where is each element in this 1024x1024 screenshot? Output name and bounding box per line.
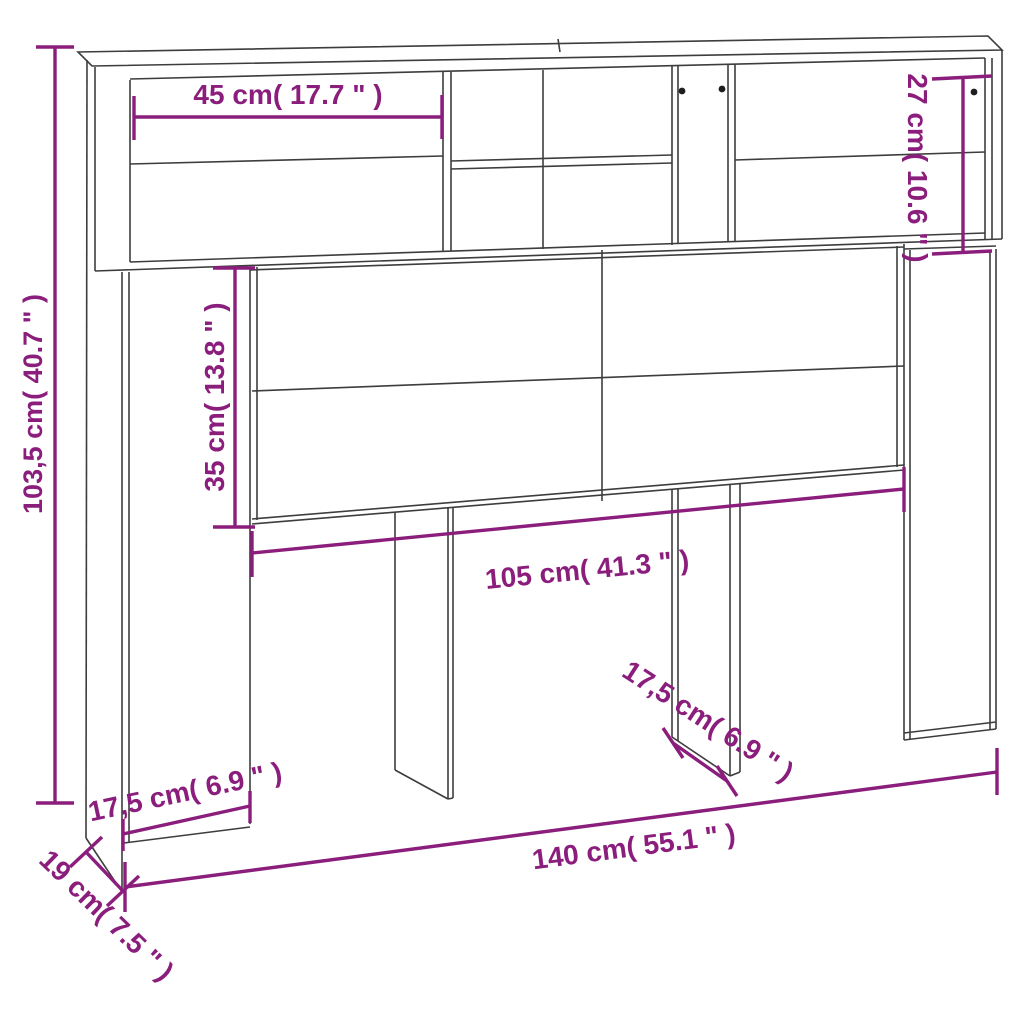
dimension-diagram: 45 cm( 17.7 " ) 27 cm( 10.6 " ) 103,5 cm…: [0, 0, 1024, 1024]
panel-top-edge: [250, 247, 904, 270]
dim-overall-height: 103,5 cm( 40.7 " ): [18, 47, 74, 803]
diagram-canvas: 45 cm( 17.7 " ) 27 cm( 10.6 " ) 103,5 cm…: [0, 0, 1024, 1024]
panel-bottom-edge: [252, 465, 904, 519]
dim-label-inner-width: 105 cm( 41.3 " ): [484, 544, 691, 595]
hutch-right-shelf: [735, 152, 985, 160]
shelf-pin-hole: [679, 88, 686, 95]
dim-label-top-opening-width: 45 cm( 17.7 " ): [193, 79, 382, 110]
dim-label-overall-height: 103,5 cm( 40.7 " ): [18, 294, 48, 514]
dim-inner-width: 105 cm( 41.3 " ): [252, 467, 904, 595]
shelf-pin-hole: [719, 86, 726, 93]
dim-top-opening-width: 45 cm( 17.7 " ): [134, 79, 442, 140]
dim-left-column-width: 17,5 cm( 6.9 " ): [85, 756, 284, 851]
dim-label-overall-depth: 19 cm( 7.5 " ): [33, 844, 179, 987]
shelf-pin-hole: [971, 89, 978, 96]
hutch-left-shelf: [130, 156, 443, 164]
door-midline: [252, 366, 904, 391]
dim-overall-depth: 19 cm( 7.5 " ): [33, 837, 179, 987]
dim-label-left-column-width: 17,5 cm( 6.9 " ): [85, 756, 284, 827]
dim-leg-depth: 17,5 cm( 6.9 " ): [617, 654, 799, 796]
dim-label-hutch-height: 27 cm( 10.6 " ): [902, 73, 933, 262]
dim-door-panel-height: 35 cm( 13.8 " ): [199, 268, 255, 527]
dim-label-overall-width: 140 cm( 55.1 " ): [530, 818, 737, 875]
dim-label-door-panel-height: 35 cm( 13.8 " ): [199, 302, 230, 491]
